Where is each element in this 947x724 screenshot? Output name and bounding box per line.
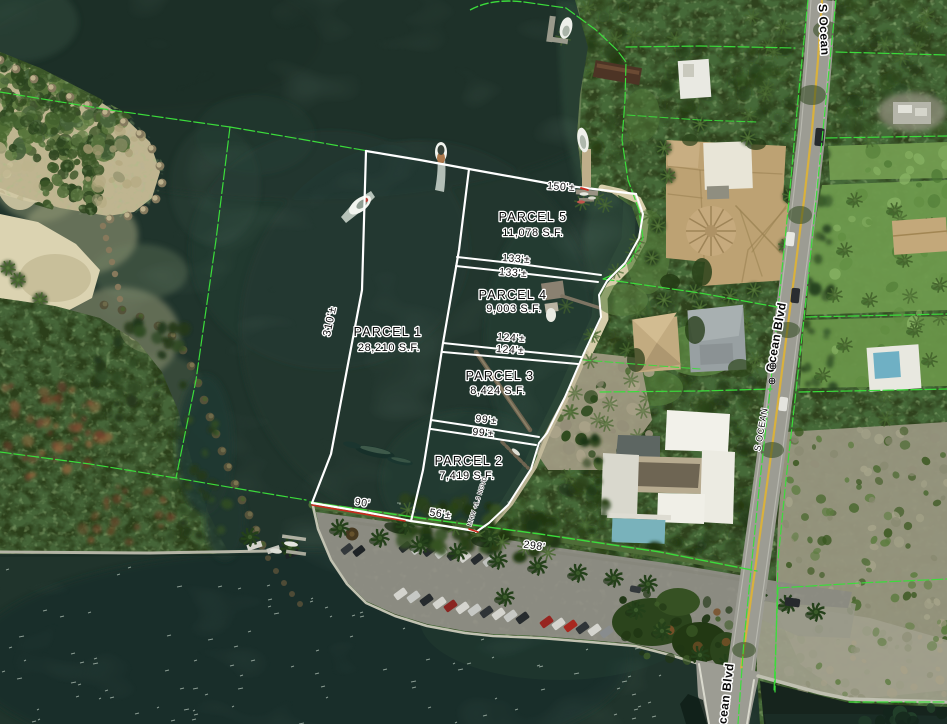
svg-text:PARCEL 3: PARCEL 3: [466, 369, 535, 383]
svg-text:99'±: 99'±: [472, 426, 495, 440]
svg-text:9,003 S.F.: 9,003 S.F.: [486, 303, 542, 315]
svg-text:8,424 S.F.: 8,424 S.F.: [470, 385, 526, 397]
svg-text:S Ocean: S Ocean: [816, 4, 833, 56]
svg-text:99'±: 99'±: [475, 413, 498, 427]
svg-text:124'±: 124'±: [496, 343, 525, 357]
svg-text:90': 90': [354, 496, 371, 510]
svg-text:150'±: 150'±: [547, 180, 576, 194]
svg-text:PARCEL 1: PARCEL 1: [354, 325, 423, 339]
svg-text:11,078 S.F.: 11,078 S.F.: [502, 227, 563, 239]
svg-text:PARCEL 4: PARCEL 4: [479, 288, 548, 302]
svg-text:PARCEL 5: PARCEL 5: [499, 210, 568, 224]
svg-text:PARCEL 2: PARCEL 2: [435, 454, 504, 468]
svg-text:133'±: 133'±: [502, 252, 531, 266]
svg-text:133'±: 133'±: [499, 266, 528, 280]
svg-text:28,210 S.F.: 28,210 S.F.: [358, 342, 420, 354]
